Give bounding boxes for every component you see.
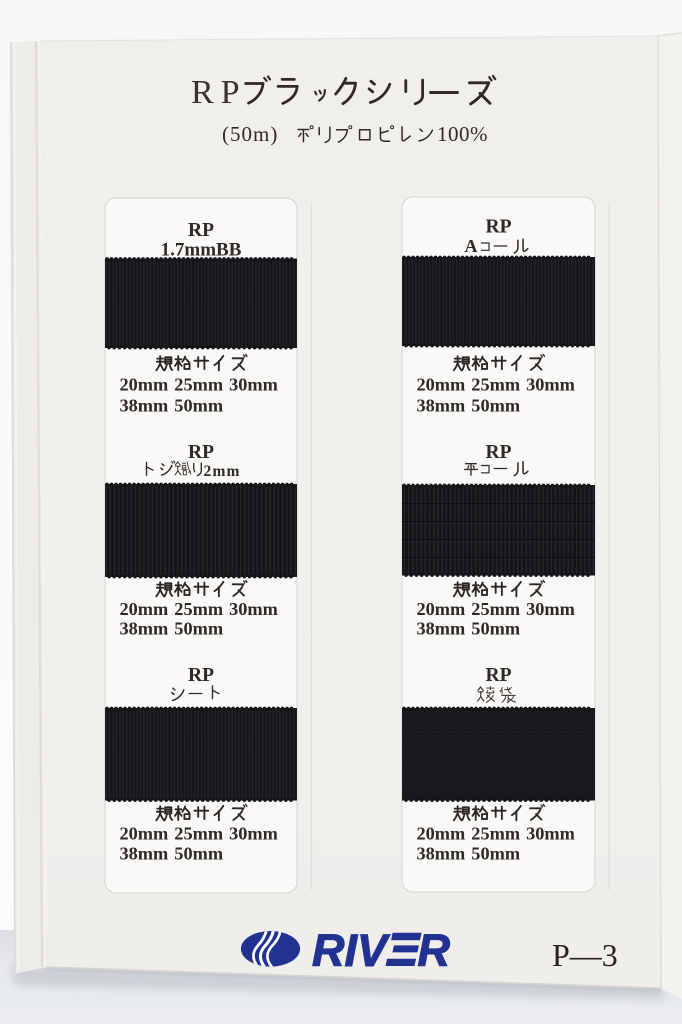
svg-text:RP: RP <box>188 442 214 463</box>
svg-text:RP: RP <box>486 442 512 463</box>
svg-text:38mm 50mm: 38mm 50mm <box>120 619 224 639</box>
svg-text:RIV: RIV <box>312 925 391 976</box>
svg-text:P—3: P—3 <box>552 937 618 973</box>
svg-text:(50m): (50m) <box>222 122 278 146</box>
svg-text:RP: RP <box>486 665 512 686</box>
svg-text:38mm 50mm: 38mm 50mm <box>417 844 521 864</box>
svg-text:20mm 25mm 30mm: 20mm 25mm 30mm <box>417 599 575 619</box>
svg-text:RP: RP <box>486 217 512 238</box>
svg-text:RP: RP <box>188 220 214 241</box>
svg-text:38mm 50mm: 38mm 50mm <box>120 396 224 416</box>
svg-text:2mm: 2mm <box>204 463 241 480</box>
svg-text:RP: RP <box>188 665 214 686</box>
svg-text:38mm 50mm: 38mm 50mm <box>120 844 224 864</box>
svg-text:100%: 100% <box>437 122 488 146</box>
svg-text:20mm 25mm 30mm: 20mm 25mm 30mm <box>417 375 575 395</box>
svg-text:20mm 25mm 30mm: 20mm 25mm 30mm <box>120 824 278 844</box>
svg-text:RP: RP <box>191 74 247 111</box>
svg-text:38mm 50mm: 38mm 50mm <box>417 396 521 416</box>
svg-text:38mm 50mm: 38mm 50mm <box>417 619 521 639</box>
svg-text:20mm 25mm 30mm: 20mm 25mm 30mm <box>417 824 575 844</box>
svg-text:20mm 25mm 30mm: 20mm 25mm 30mm <box>120 599 278 619</box>
svg-text:20mm 25mm 30mm: 20mm 25mm 30mm <box>120 375 278 395</box>
svg-text:R: R <box>418 925 451 976</box>
svg-text:A: A <box>465 236 478 256</box>
